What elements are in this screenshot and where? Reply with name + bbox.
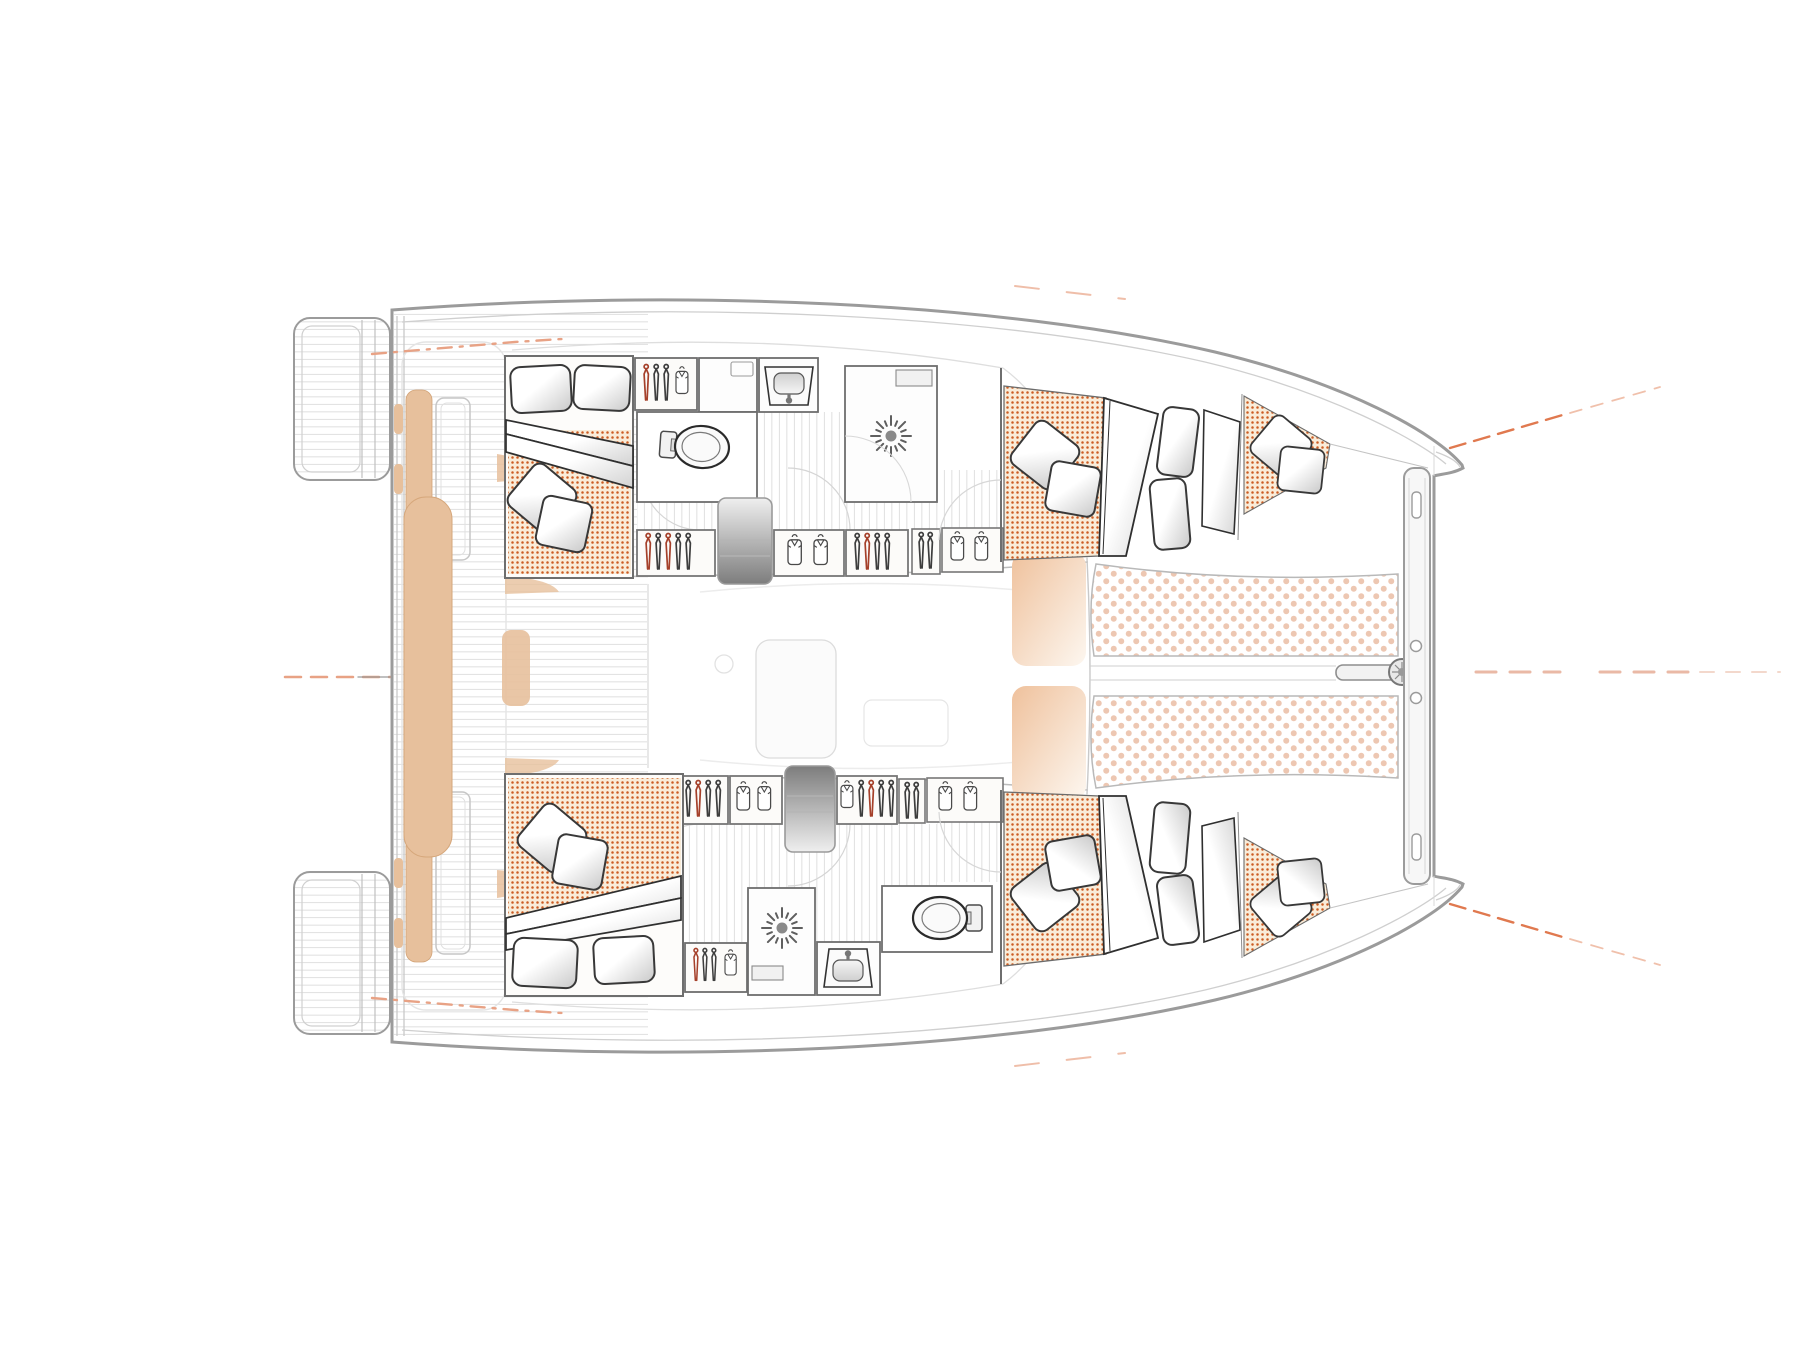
forward-seat-pod-lower: [1012, 686, 1086, 800]
swim-platform-upper: [294, 318, 390, 480]
lower-wardrobe-outboard: [685, 943, 747, 992]
lower-toilet-room: [882, 886, 992, 952]
upper-toilet-room: [637, 412, 757, 502]
upper-cabinet: [699, 358, 757, 412]
lower-sink-unit: [817, 942, 880, 995]
cushion-pillow: [551, 833, 609, 891]
bed-pillow: [573, 365, 631, 412]
floor-plan-page: [0, 0, 1800, 1350]
swim-platform-lower: [294, 872, 390, 1034]
beam-slot: [1412, 834, 1421, 860]
upper-shower-room: [845, 366, 937, 502]
floor-plan-canvas: [0, 0, 1800, 1350]
corridor-planks: [937, 470, 1003, 530]
trampoline-upper-panel: [1091, 564, 1398, 656]
trampoline-lower-panel: [1091, 696, 1398, 788]
sheer-dash-upper-mid: [1015, 286, 1125, 299]
upper-sink-unit: [759, 358, 818, 412]
sheer-dash-lower-mid: [1015, 1053, 1125, 1066]
upper-aft-cabin: [504, 356, 633, 578]
bow-dash-upper-faint: [1570, 387, 1660, 413]
companionway-stairs: [718, 498, 772, 584]
cushion-pillow: [534, 494, 593, 553]
cockpit-table: [502, 630, 530, 706]
shower-shelf: [752, 966, 783, 980]
sink-icon: [824, 949, 872, 987]
aft-sunpad: [404, 497, 452, 857]
saloon-table: [756, 640, 836, 758]
bed-pillow: [593, 935, 655, 984]
beam-hole: [1411, 641, 1422, 652]
lower-aft-cabin: [505, 774, 683, 996]
corridor-planks: [937, 822, 1003, 882]
bow-dash-upper: [1450, 414, 1566, 448]
bed-pillow: [510, 364, 572, 413]
bow-dash-lower-faint: [1570, 939, 1660, 965]
upper-wardrobe-outboard: [635, 358, 697, 410]
beam-slot: [1412, 492, 1421, 518]
shower-shelf: [896, 370, 932, 386]
bed-pillow: [512, 937, 578, 988]
forward-seat-pod-upper: [1012, 552, 1086, 666]
companionway-stairs: [785, 766, 835, 852]
shower-drain-icon: [871, 416, 911, 456]
beam-hole: [1411, 693, 1422, 704]
shower-drain-icon: [762, 908, 802, 948]
lower-shower-room: [748, 888, 815, 995]
sink-icon: [765, 367, 813, 405]
bow-dash-lower: [1450, 904, 1566, 938]
forward-crossbeam: [1404, 468, 1430, 884]
